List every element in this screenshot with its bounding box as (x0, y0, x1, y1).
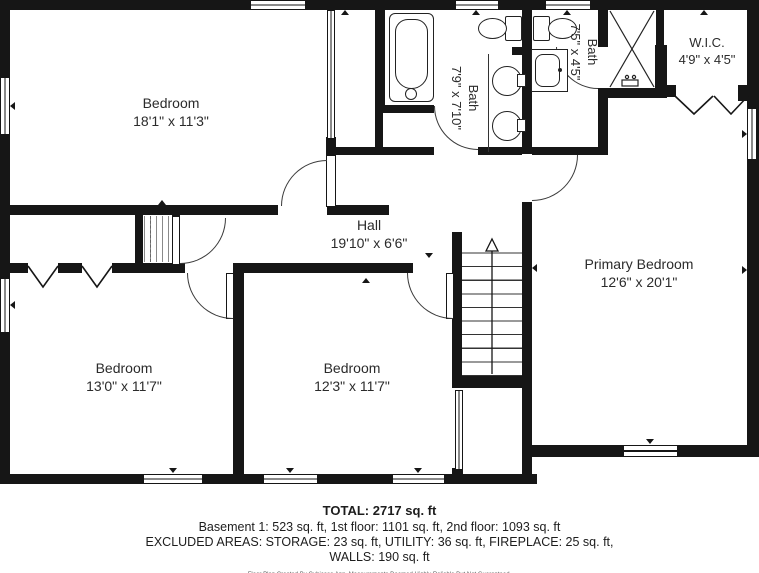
window (0, 278, 10, 333)
wall-segment (375, 105, 434, 113)
dim-marker (362, 278, 370, 283)
dim-marker (10, 301, 15, 309)
room-label-bath-main: Bath 7'9" x 7'10" (447, 66, 481, 130)
summary-walls: WALLS: 190 sq. ft (0, 550, 759, 565)
room-label-wic: W.I.C. 4'9" x 4'5" (679, 35, 736, 69)
dim-marker (472, 10, 480, 15)
window (545, 0, 591, 10)
wall-wic-west (656, 10, 664, 90)
door-swing (407, 273, 453, 319)
dim-marker (742, 130, 747, 138)
summary-excluded: EXCLUDED AREAS: STORAGE: 23 sq. ft, UTIL… (0, 535, 759, 550)
floor-plan: Bedroom 18'1" x 11'3" Bath 7'9" x 7'10" … (0, 0, 759, 573)
room-label-bedroom-bm: Bedroom 12'3" x 11'7" (314, 359, 390, 395)
door-opening (522, 153, 532, 203)
sink-faucet-icon (517, 74, 526, 87)
dim-marker (646, 439, 654, 444)
interior-glass-wall (327, 10, 335, 139)
stairs (462, 240, 522, 377)
area-summary: TOTAL: 2717 sq. ft Basement 1: 523 sq. f… (0, 503, 759, 573)
dim-marker (563, 10, 571, 15)
wall-bedrooms-divider (233, 263, 244, 474)
bathtub-basin (395, 19, 428, 89)
wall-segment (738, 85, 757, 101)
wall-bath-left (375, 10, 385, 110)
toilet-tank (505, 16, 522, 41)
closet-rod (150, 216, 151, 262)
dim-marker (532, 264, 537, 272)
tub-faucet-icon (405, 88, 417, 100)
room-label-bath-small: Bath 7'5" x 4'5" (566, 24, 600, 81)
dim-marker (169, 468, 177, 473)
closet-shelves (144, 216, 172, 262)
dim-marker (341, 10, 349, 15)
door-leaf (326, 155, 336, 207)
dim-marker (10, 102, 15, 110)
room-label-hall: Hall 19'10" x 6'6" (331, 216, 408, 252)
window (455, 0, 499, 10)
door-swing (532, 155, 578, 201)
wall-segment (512, 47, 532, 55)
door-leaf (172, 216, 180, 265)
dim-marker (425, 253, 433, 258)
vanity-sink (535, 54, 560, 87)
vanity-counter-edge (488, 54, 489, 152)
wall-bath2-south (532, 147, 608, 155)
window (250, 0, 306, 10)
window (623, 445, 678, 457)
wall-stairs-south (452, 376, 532, 388)
dim-marker (700, 10, 708, 15)
room-label-bedroom-bl: Bedroom 13'0" x 11'7" (86, 359, 162, 395)
window (392, 474, 445, 484)
wall-top (0, 0, 757, 10)
wall-segment (135, 213, 143, 263)
window (747, 108, 757, 160)
room-label-bedroom-tl: Bedroom 18'1" x 11'3" (133, 94, 209, 130)
vanity-faucet-icon (558, 68, 562, 72)
dim-marker (742, 266, 747, 274)
wall-segment (656, 85, 676, 97)
window (0, 77, 10, 135)
wall-segment (327, 205, 389, 215)
wall-segment (598, 90, 608, 155)
dim-marker (414, 468, 422, 473)
summary-total: TOTAL: 2717 sq. ft (0, 503, 759, 519)
door-swing (180, 218, 226, 264)
wall-right (747, 0, 759, 457)
window (263, 474, 318, 484)
summary-floors: Basement 1: 523 sq. ft, 1st floor: 1101 … (0, 520, 759, 535)
room-label-primary: Primary Bedroom 12'6" x 20'1" (585, 255, 694, 291)
door-swing (281, 160, 327, 206)
dim-marker (286, 468, 294, 473)
toilet-bowl (478, 18, 507, 39)
wall-segment (327, 147, 434, 155)
shower-icon (610, 11, 654, 87)
open-to-below-rail (455, 390, 463, 470)
wall-left (0, 0, 10, 484)
sink-faucet-icon (517, 119, 526, 132)
wall-segment (0, 263, 28, 273)
dim-marker (158, 200, 166, 205)
wall-hall-south-mid (244, 263, 413, 273)
wall-segment (58, 263, 82, 273)
door-swing (187, 273, 233, 319)
window (143, 474, 203, 484)
